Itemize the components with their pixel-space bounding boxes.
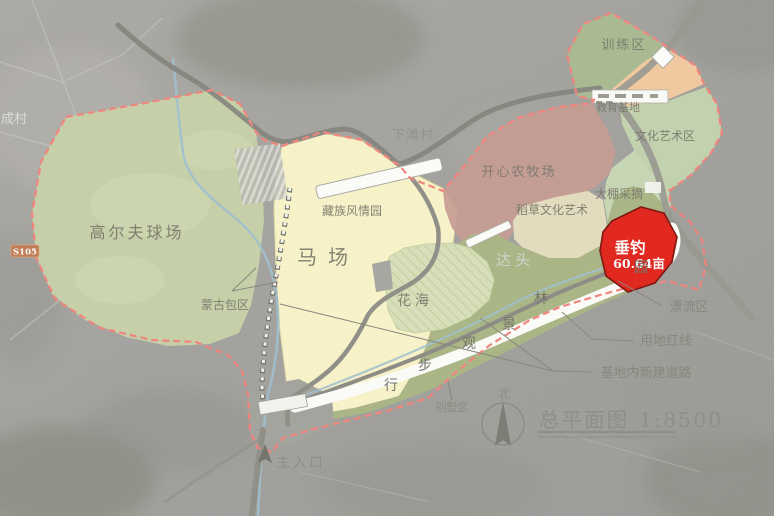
site-plan-canvas: 垂钓 60.64亩 高尔夫球场 马场 藏族风情园 蒙古包区 花海 开心农牧场 稻… xyxy=(0,0,774,516)
satellite-noise-overlay xyxy=(0,0,774,516)
master-plan-map: 垂钓 60.64亩 高尔夫球场 马场 藏族风情园 蒙古包区 花海 开心农牧场 稻… xyxy=(0,0,774,516)
